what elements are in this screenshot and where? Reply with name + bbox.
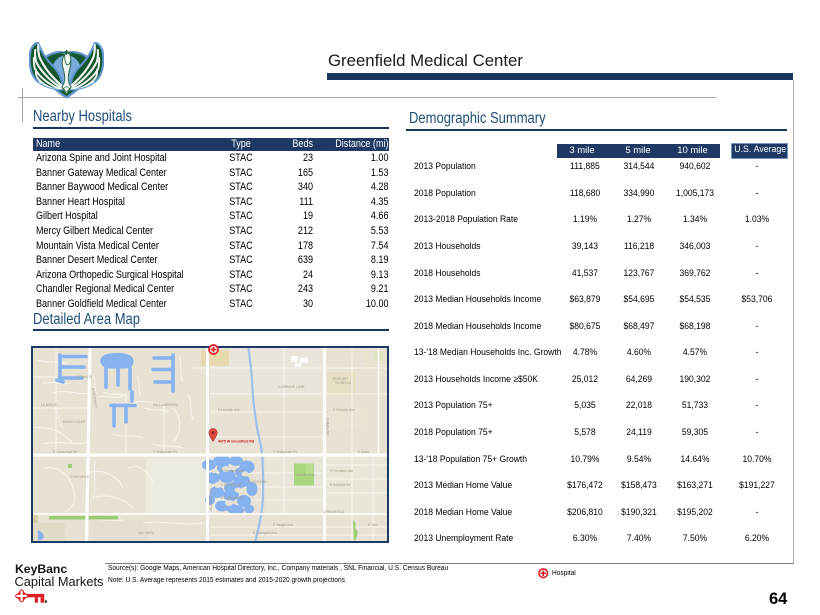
svg-text:KINGS COURT: KINGS COURT — [63, 420, 86, 424]
svg-text:S Higley Rd: S Higley Rd — [326, 418, 330, 436]
svg-text:4075 W Greenfield Rd: 4075 W Greenfield Rd — [218, 440, 254, 444]
svg-text:E Houston Ave: E Houston Ave — [333, 408, 355, 412]
svg-text:EUROPEAN: EUROPEAN — [248, 480, 267, 484]
svg-text:VAL VISTA: VAL VISTA — [138, 531, 155, 535]
svg-text:E Lexington Ave: E Lexington Ave — [253, 531, 277, 535]
svg-text:E Toms St: E Toms St — [77, 375, 92, 379]
svg-text:GREENFIELD: GREENFIELD — [323, 510, 345, 514]
svg-text:E Tremaine Ave: E Tremaine Ave — [221, 469, 244, 473]
svg-text:S Greenfield Rd: S Greenfield Rd — [209, 488, 213, 512]
svg-text:E Guad: E Guad — [358, 450, 369, 454]
svg-text:WILLOWBROOK: WILLOWBROOK — [153, 403, 179, 407]
svg-text:E Vau: E Vau — [368, 523, 377, 527]
svg-text:CONCORDE: CONCORDE — [70, 475, 90, 479]
svg-text:E Campbell Rd: E Campbell Rd — [221, 496, 243, 500]
svg-text:E Guadalupe Rd: E Guadalupe Rd — [53, 450, 78, 454]
svg-text:VIA BELLA: VIA BELLA — [335, 381, 352, 385]
svg-text:Nichols Park: Nichols Park — [296, 473, 315, 477]
svg-text:E Vaught Ave: E Vaught Ave — [273, 523, 293, 527]
svg-text:E Redfield Rd: E Redfield Rd — [330, 483, 351, 487]
svg-text:LA DOLCE: LA DOLCE — [41, 403, 58, 407]
svg-text:CARRIAGE LANE: CARRIAGE LANE — [278, 385, 306, 389]
svg-text:E Guadalupe Rd: E Guadalupe Rd — [153, 450, 178, 454]
svg-text:E Redfield Rd: E Redfield Rd — [221, 483, 242, 487]
svg-text:E Tremaine Ave: E Tremaine Ave — [330, 469, 353, 473]
svg-text:E Houston Ave: E Houston Ave — [218, 408, 240, 412]
svg-text:E Guadalupe Rd: E Guadalupe Rd — [273, 450, 298, 454]
